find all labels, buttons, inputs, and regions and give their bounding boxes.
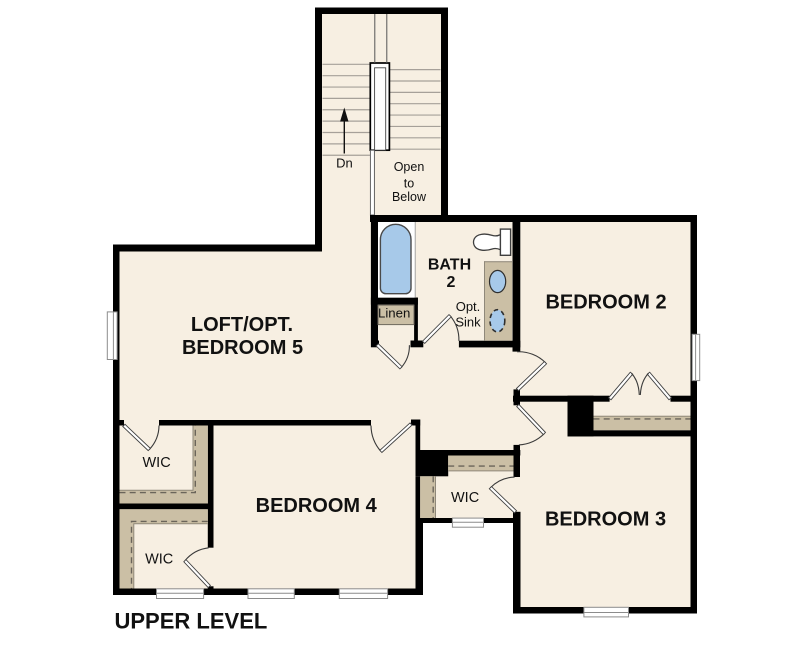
svg-text:LOFT/OPT.: LOFT/OPT. bbox=[191, 314, 293, 336]
svg-text:2: 2 bbox=[447, 274, 456, 291]
svg-text:BEDROOM 4: BEDROOM 4 bbox=[256, 495, 378, 517]
svg-text:Open: Open bbox=[394, 160, 425, 174]
svg-text:WIC: WIC bbox=[143, 455, 171, 471]
svg-text:WIC: WIC bbox=[145, 552, 173, 568]
svg-text:Dn: Dn bbox=[336, 156, 353, 171]
svg-text:BATH: BATH bbox=[428, 257, 471, 274]
svg-text:WIC: WIC bbox=[451, 490, 479, 506]
svg-text:Below: Below bbox=[392, 190, 427, 204]
svg-text:BEDROOM 3: BEDROOM 3 bbox=[545, 509, 666, 531]
svg-text:Sink: Sink bbox=[455, 314, 481, 329]
svg-text:BEDROOM 2: BEDROOM 2 bbox=[545, 291, 666, 313]
svg-text:UPPER LEVEL: UPPER LEVEL bbox=[115, 609, 268, 634]
svg-text:Opt.: Opt. bbox=[456, 299, 481, 314]
svg-text:Linen: Linen bbox=[378, 306, 410, 321]
svg-text:BEDROOM 5: BEDROOM 5 bbox=[182, 337, 303, 359]
svg-text:to: to bbox=[404, 177, 414, 191]
